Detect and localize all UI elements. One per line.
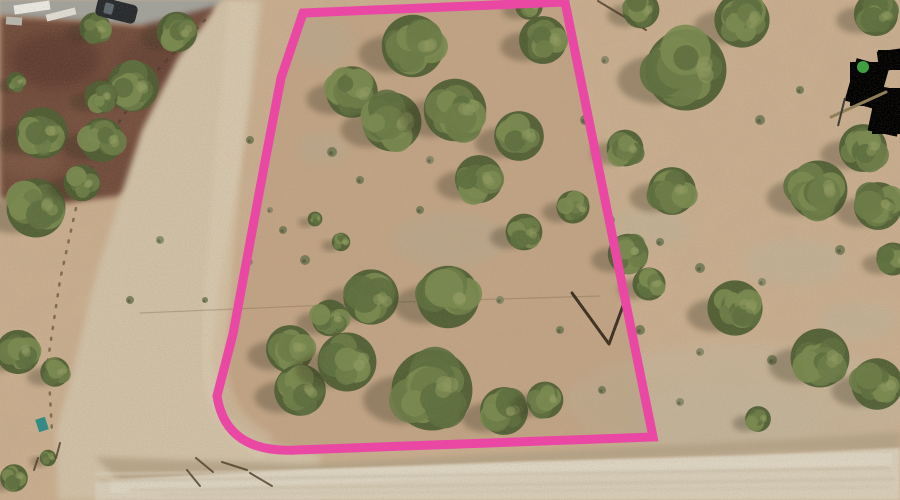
aerial-photo-canvas <box>0 0 900 500</box>
aerial-photo <box>0 0 900 500</box>
photo-grain-overlay <box>0 0 900 500</box>
